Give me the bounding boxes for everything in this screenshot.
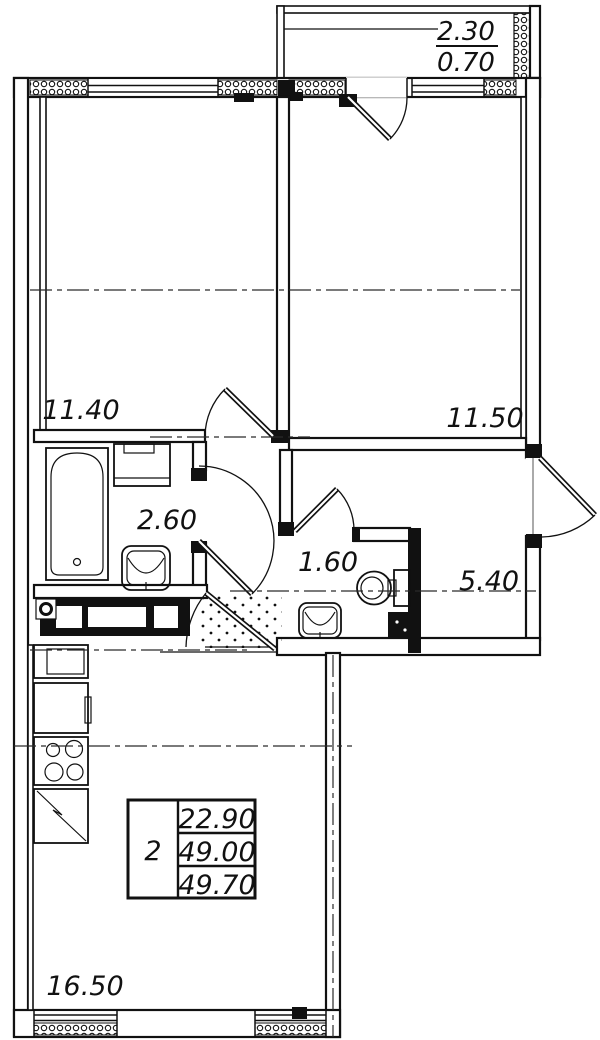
duct-cell <box>88 607 146 627</box>
wall-wc-left <box>280 450 292 524</box>
wall-bedroom2-bottom <box>289 438 526 450</box>
balcony-parapet-left <box>277 6 284 78</box>
wall-end-cap <box>191 468 207 481</box>
wc-vent-shaft <box>388 612 414 638</box>
door-entrance <box>526 458 596 537</box>
wall-bathroom-top <box>34 430 205 442</box>
door-bathroom <box>199 466 274 594</box>
balcony-door-opening <box>339 77 407 107</box>
kitchen-sink <box>34 789 88 843</box>
wall-hatch-segment <box>484 80 516 95</box>
label-bathroom-area: 2.60 <box>137 505 197 536</box>
wc-sink <box>299 603 341 639</box>
balcony-wall-cap <box>278 80 295 96</box>
floor-plan-drawing: 2 22.90 49.00 49.70 11.40 11.50 2.60 1.6… <box>0 0 600 1040</box>
wall-bathroom-bottom <box>34 585 207 598</box>
wall-left <box>14 78 28 1036</box>
wall-hatch-segment <box>218 80 277 95</box>
entrance-jamb-bottom <box>526 534 542 548</box>
entrance-jamb-top <box>526 444 542 458</box>
wall-furring-kitchen <box>28 645 33 1010</box>
balcony <box>277 6 540 78</box>
label-bedroom1-area: 11.40 <box>42 395 119 426</box>
apartment-area-value: 49.00 <box>178 837 255 868</box>
wall-between-bedrooms <box>277 97 289 438</box>
window-bedroom1 <box>88 79 218 97</box>
riser-pipe <box>41 604 52 615</box>
rooms-count: 2 <box>144 836 161 867</box>
bathtub <box>46 448 108 580</box>
radiator-pier <box>292 1007 307 1019</box>
fridge <box>34 683 88 733</box>
bathroom-sink <box>122 546 170 590</box>
balcony-dim-top: 2.30 <box>437 17 495 47</box>
balcony-parapet-top <box>277 6 540 13</box>
balcony-wall-hatch <box>514 13 530 78</box>
living-area-value: 22.90 <box>178 804 255 835</box>
balcony-dim-bottom: 0.70 <box>437 48 495 78</box>
wall-right-mid <box>526 536 540 640</box>
balcony-wall-right <box>530 6 540 78</box>
washing-machine <box>114 444 170 486</box>
label-bedroom2-area: 11.50 <box>446 403 523 434</box>
wall-end-cap <box>352 527 360 542</box>
wall-wc-top <box>354 528 410 541</box>
label-hall-area: 5.40 <box>459 566 519 597</box>
label-kitchen-living-area: 16.50 <box>46 971 123 1002</box>
wall-hatch-segment <box>30 80 88 95</box>
stove <box>34 737 88 785</box>
kitchen-counter <box>34 645 91 843</box>
duct-cell <box>154 606 178 628</box>
window-kitchen-left <box>34 1010 117 1037</box>
wall-end-cap <box>278 522 294 536</box>
duct-block <box>36 598 190 636</box>
window-bedroom2 <box>412 79 484 97</box>
door-balcony <box>348 97 407 139</box>
wall-right-upper <box>526 78 540 458</box>
wall-furring-bedroom2 <box>521 97 526 438</box>
duct-cell <box>56 606 82 628</box>
label-wc-area: 1.60 <box>298 547 358 578</box>
total-area-value: 49.70 <box>178 870 255 901</box>
door-wc <box>295 489 354 531</box>
floor-plan: 2 22.90 49.00 49.70 11.40 11.50 2.60 1.6… <box>0 0 600 1040</box>
wall-pier <box>234 93 254 102</box>
balcony-dimension: 2.30 0.70 <box>436 17 498 78</box>
toilet <box>357 570 410 606</box>
wall-furring-bedroom1 <box>40 97 46 430</box>
area-summary-table: 2 22.90 49.00 49.70 <box>128 800 256 901</box>
window-kitchen-right <box>255 1010 326 1037</box>
door-bedroom1 <box>205 389 273 436</box>
